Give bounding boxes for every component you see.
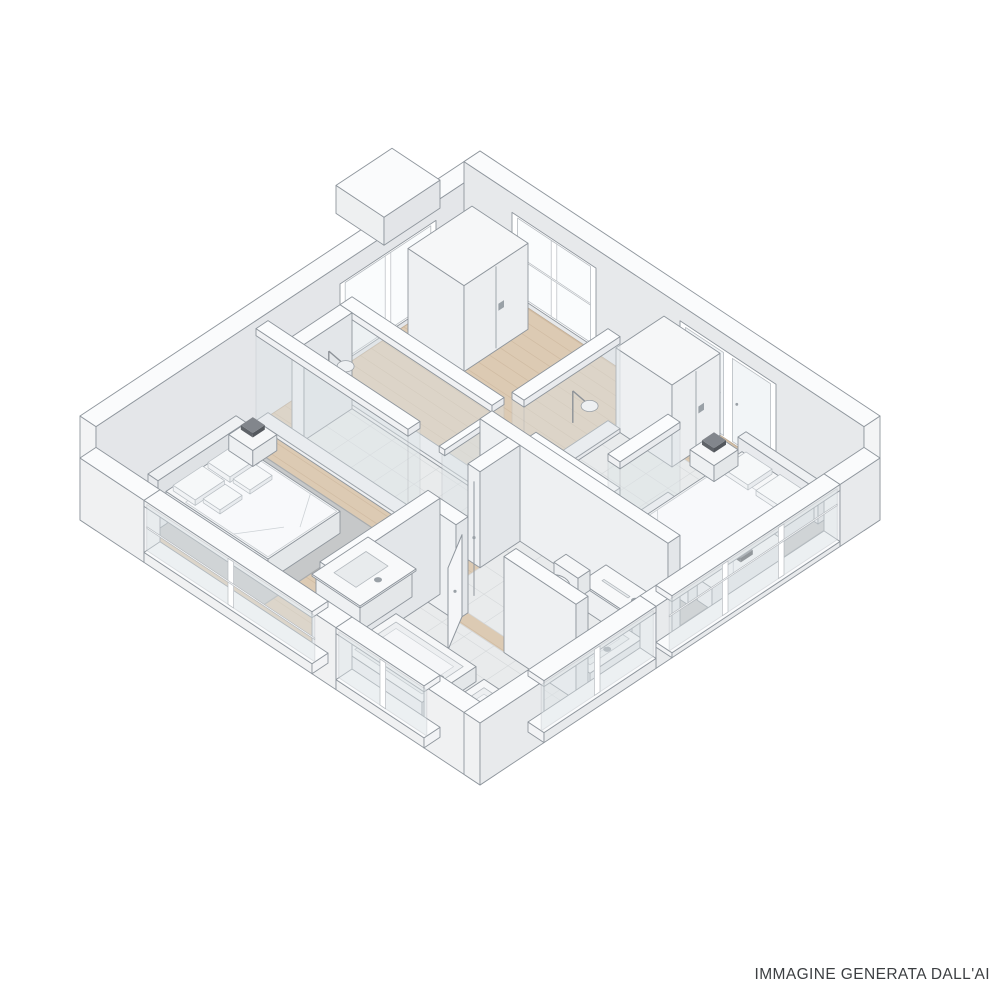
ai-caption: IMMAGINE GENERATA DALL'AI <box>755 967 990 983</box>
isometric-floor-plan: IMMAGINE GENERATA DALL'AI <box>0 0 1000 1000</box>
floor-plan-canvas <box>0 0 1000 1000</box>
